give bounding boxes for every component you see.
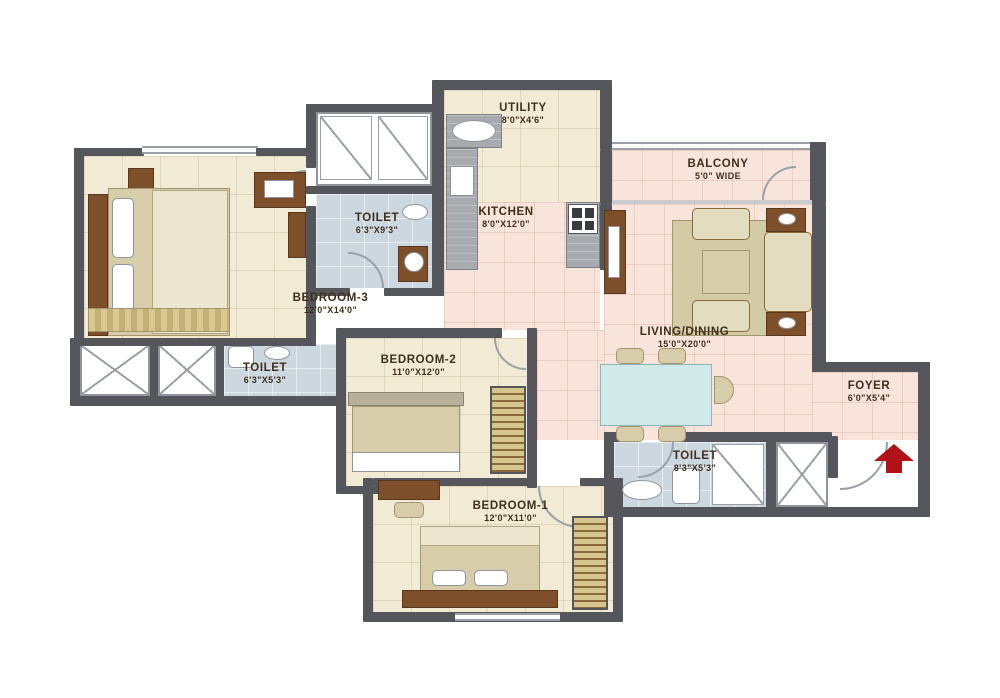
bedroom1-pillow-1 [432,570,466,586]
wall-balcony-left [600,150,612,204]
wall-left-block-left [70,338,80,404]
wall-bed2-top [336,328,502,338]
armchair-bottom [692,300,750,332]
dining-table [600,364,712,426]
toilet-left-wc [228,346,254,368]
toilet-top-basin [402,204,428,220]
utility-sink [450,166,474,196]
stove-burner [572,208,582,218]
wall-foyer-right [918,362,930,517]
bedroom3-pillow-1 [112,198,134,258]
wall-utility-right [600,80,612,150]
bedroom3-side-unit [288,212,306,258]
foyer-floor [812,372,918,440]
wall-utility-top [432,80,612,90]
wall-bed3-top-left [74,148,144,156]
bedroom1-blanket [420,526,540,546]
shaft-box [776,442,828,507]
side-table-bottom-decor [778,317,796,329]
bedroom1-headboard [402,590,558,608]
toilet-top-wc [404,252,424,272]
wall-strip-left [604,432,614,517]
toilet-bottom-wc [672,468,700,504]
wall-bed3-right-upper [306,104,316,168]
wall-bed3-left [74,148,84,346]
bedroom2-headboard [348,392,464,406]
bedroom3-dresser-top [264,180,294,198]
kitchen-stove [568,204,598,234]
wall-balcony-right [810,142,826,204]
wall-toilet-shaft-divider [766,436,776,511]
utility-basin [452,120,496,142]
bedroom2-sheet [352,452,460,472]
bedroom2-wardrobe [490,386,526,474]
dining-chair [616,426,644,442]
wardrobe-panel-2 [378,116,428,180]
wall-bed3-right-lower [306,206,316,346]
balcony-living-divider [612,200,812,204]
wall-xbox-divider-2 [216,342,224,398]
stove-burner [585,208,595,218]
dining-chair [658,348,686,364]
sofa [764,232,812,312]
corridor-floor [537,330,604,440]
toilet-bottom-basin [622,480,662,500]
wall-bed1-right [613,478,623,620]
window-balcony-rail [612,142,814,150]
stove-burner [572,221,582,231]
wall-toilet-top-bottom-left [306,288,350,296]
wall-xbox-divider-1 [150,342,158,398]
wall-dressing-top [306,104,444,112]
bedroom1-pillow-2 [474,570,508,586]
bedroom3-rug [88,308,230,332]
wardrobe-box-1 [80,344,150,396]
wall-bed1-left [363,478,373,620]
bedroom1-desk [378,480,440,500]
wall-strip-top-right [674,432,832,442]
wall-shaft-entry-divider [828,436,838,478]
wall-utility-left [432,80,444,296]
tv-screen [608,226,620,278]
wall-dressing-toilet-divider [306,186,444,194]
entry-arrow-head [874,444,914,461]
armchair-top [692,208,750,240]
floor-plan: UTILITY 8'0"X4'6" BALCONY 5'0" WIDE TOIL… [0,0,1000,698]
wall-bed2-left [336,328,346,494]
toilet-left-basin [264,346,290,360]
side-table-top-decor [778,213,796,225]
coffee-table [702,250,750,294]
bedroom1-chair [394,502,424,518]
wall-bed2-bottom-stub [336,486,381,494]
wall-left-block-bottom [70,396,342,406]
wardrobe-panel-1 [320,116,372,180]
dining-chair [658,426,686,442]
wall-foyer-top [812,362,930,372]
stove-burner [585,221,595,231]
wall-living-right [812,204,826,372]
bedroom1-wardrobe [572,516,608,610]
wall-bed2-right [527,328,537,488]
wardrobe-box-2 [158,344,216,396]
wall-bed3-bottom [74,338,316,346]
window-bed1 [455,613,560,621]
shower-panel [712,444,764,505]
entry-arrow-stem [886,461,902,473]
dining-chair [616,348,644,364]
window-bed3 [142,146,258,154]
